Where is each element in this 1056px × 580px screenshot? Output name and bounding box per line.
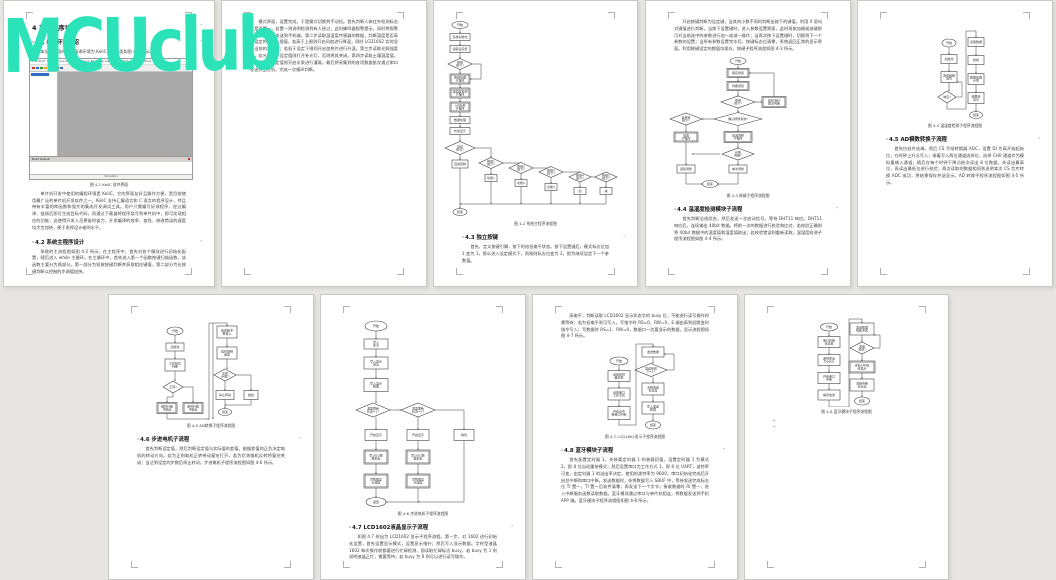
flowchart-figure: 开始串口初始化设置波特率设为9600开启串口中断等待发送发送数据到缓冲区发送完成… — [745, 317, 948, 407]
svg-text:单次调整: 单次调整 — [732, 166, 744, 171]
revision-dot — [12, 28, 14, 30]
flowchart-node: 开始 — [730, 57, 746, 64]
svg-text:返回: 返回 — [373, 499, 379, 504]
svg-text:结束: 结束 — [859, 398, 865, 403]
flowchart-node: 逆时针脉冲输出 — [183, 403, 203, 414]
svg-text:开始: 开始 — [373, 323, 379, 328]
flowchart-node: 连续调整 — [677, 165, 695, 173]
svg-text:结束: 结束 — [707, 181, 713, 186]
flowchart-node: 按键处理子程序 — [450, 74, 470, 84]
flowchart-node: 结束 — [646, 421, 661, 429]
flowchart-node: 结束 — [219, 409, 232, 416]
svg-text:按键4按下?: 按键4按下? — [576, 172, 584, 180]
toolbar-icon — [36, 67, 39, 70]
flowchart-node: 自动控制 — [452, 160, 468, 168]
section-heading: 4.1 编译环境介绍 — [32, 38, 186, 46]
flowchart-node: 开始 — [452, 22, 468, 29]
flowchart-node: 开始 — [942, 39, 956, 47]
svg-text:结束: 结束 — [457, 209, 463, 214]
flowchart-node: 响应? — [938, 91, 956, 103]
keil-screenshot: File Edit View Project Flash Debug Perip… — [29, 58, 193, 180]
flowchart-node: 开启显示 — [365, 430, 387, 441]
body-text: 模式界面，设置完成，于是模式切换到手动挡。首先判断人体红外检测标志位是否置一，若… — [250, 19, 398, 73]
figure-caption: 图 4-1 KeilC 软件界面 — [32, 182, 186, 188]
flowchart-node: 停止转动 — [216, 391, 234, 400]
flowchart-node: 数据处理计算 — [968, 74, 984, 85]
svg-text:减: 减 — [604, 188, 607, 193]
flow-connector — [718, 173, 739, 184]
svg-text:开始: 开始 — [735, 58, 741, 63]
svg-text:按键按下?: 按键按下? — [734, 97, 742, 105]
figure-caption: 图 4-4 温湿度检测子程序流程图 — [886, 123, 1024, 129]
svg-text:系统初始化: 系统初始化 — [452, 34, 467, 39]
svg-text:写入命令: 写入命令 — [373, 340, 379, 347]
page-content: 开始串口初始化设置波特率设为9600开启串口中断等待发送发送数据到缓冲区发送完成… — [745, 295, 948, 579]
flowchart-node: 正转? — [163, 381, 183, 393]
flowchart-node: 串口初始化设置 — [818, 337, 840, 348]
toolbar-icon — [40, 67, 43, 70]
page-6[interactable]: 开始初始化工作模式判断正转?顺时针脉冲输出逆时针脉冲输出给定脉冲数置入延时控制速… — [108, 294, 314, 580]
flow-connector — [874, 335, 880, 348]
flowchart-node: 读取数据 — [968, 38, 984, 47]
flowchart-node: 写入显示地址 — [364, 357, 388, 369]
svg-text:开启显示: 开启显示 — [412, 432, 424, 437]
svg-text:停止转动: 停止转动 — [219, 392, 231, 397]
svg-text:连续调整: 连续调整 — [680, 166, 692, 171]
flow-connector — [749, 73, 774, 97]
svg-text:功能2: 功能2 — [517, 180, 525, 185]
svg-text:等待: 等待 — [461, 432, 467, 437]
flowchart-node: 波特率设为9600 — [818, 355, 840, 366]
flowchart-node: 确认按键有效? — [714, 112, 762, 125]
page-7[interactable]: 开始写入命令写入显示地址写入显示数据温度更新标志=1?湿度更新标志=1?开启显示… — [320, 294, 526, 580]
flowchart-node: 功能3 — [545, 184, 557, 191]
flowchart-node: 湿度更新标志=1? — [401, 403, 435, 417]
svg-text:按键1按下?: 按键1按下? — [487, 158, 495, 166]
flowchart-node: 延时消抖再次判断 — [762, 96, 786, 107]
flowchart-node: 温度更新标志=1? — [356, 403, 390, 417]
page-2[interactable]: 模式界面，设置完成，于是模式切换到手动挡。首先判断人体红外检测标志位是否置一，若… — [221, 0, 427, 287]
section-heading: 4 系统程序设计 — [32, 22, 186, 32]
flow-connector — [386, 488, 418, 502]
revision-dot — [8, 28, 10, 30]
svg-text:正转?: 正转? — [169, 384, 177, 389]
svg-text:按键5按下?: 按键5按下? — [602, 172, 610, 180]
paragraph-mark: ↵ — [773, 424, 920, 430]
svg-text:开启显示: 开启显示 — [370, 432, 382, 437]
flowchart-node: 清除中断标志位 — [850, 379, 874, 391]
svg-text:逆时针脉冲输出: 逆时针脉冲输出 — [187, 403, 199, 411]
revision-dot — [12, 24, 14, 26]
flowchart-node: 开始 — [610, 357, 628, 365]
svg-text:继续: 继续 — [248, 392, 254, 397]
svg-text:发送完成TI=1?: 发送完成TI=1? — [645, 366, 657, 374]
flowchart-node: 数据处理 — [450, 117, 470, 124]
page-content: 开始初始化发送起始信号响应?读取数据校验数据处理计算结果送显示结束图 4-4 温… — [858, 1, 1052, 286]
flowchart-node: 工作模式判断 — [165, 359, 185, 371]
page-1[interactable]: 4 系统程序设计4.1 编译环境介绍本设计采用的软件编译环境为 KeilC，其界… — [3, 0, 215, 287]
flowchart-node: 结束 — [703, 180, 718, 187]
revision-dot — [8, 24, 10, 26]
body-text: 首先判断设定值，然后判断设定值与实际值的差值，根据差值的正负决定电机的转动方向。… — [137, 446, 285, 466]
figure-caption: 图 4-8 蓝牙模块子程序流程图 — [773, 409, 920, 415]
svg-text:写数据显示湿度: 写数据显示湿度 — [412, 476, 424, 484]
flow-connector — [956, 82, 962, 97]
flowchart-node: 开启总中断串口中断 — [608, 407, 630, 420]
svg-text:等待发送: 等待发送 — [823, 392, 835, 397]
svg-text:开始: 开始 — [616, 358, 622, 363]
flowchart-node: 系统初始化 — [450, 34, 470, 41]
svg-text:确认按键有效?: 确认按键有效? — [728, 116, 748, 121]
body-text: 开启按键判断为设定键，当其的小数不同时判断出按下的键值，利用 if 语句对键值进… — [674, 19, 822, 53]
flowchart-node: 给定脉冲数置入 — [217, 326, 237, 338]
section-heading: 4.5 AD模数转换子流程 — [886, 135, 1024, 143]
svg-text:开始: 开始 — [826, 324, 832, 329]
svg-text:湿度更新标志=1?: 湿度更新标志=1? — [412, 405, 424, 413]
toolbar-icon — [52, 67, 55, 70]
flowchart-node: 设置键按下? — [670, 113, 702, 125]
flow-connector — [213, 323, 227, 326]
flowchart-node: 初始化 — [166, 343, 184, 351]
flowchart-node: 减 — [600, 188, 612, 195]
flowchart-node: 开始 — [167, 327, 183, 335]
toolbar-icon — [48, 67, 51, 70]
figure-caption: 图 4-7 LCD1602显示子程序流程图 — [561, 434, 709, 440]
flowchart-node: 判断键值 — [727, 81, 749, 90]
flowchart-node: 写入发送数据 — [642, 402, 664, 414]
flowchart-node: 功能1 — [485, 175, 497, 182]
svg-text:加: 加 — [578, 188, 581, 193]
page-content: 开始系统初始化读取设定值按键按下?按键处理子程序温湿度检测子程序AD检测子程序数… — [434, 1, 637, 286]
flowchart-node: 写入命令 — [364, 339, 388, 349]
flow-connector — [435, 410, 464, 430]
toolbar-icon — [60, 67, 63, 70]
flowchart-figure: 开始系统初始化读取设定值按键按下?按键处理子程序温湿度检测子程序AD检测子程序数… — [434, 19, 637, 219]
flowchart-node: 继续 — [244, 391, 258, 400]
svg-text:结束: 结束 — [650, 422, 656, 427]
flowchart-node: 按键1按下? — [479, 158, 503, 169]
toolbar-icon — [32, 67, 35, 70]
flowchart-node: 保存键值 — [727, 68, 749, 77]
flowchart-node: 自动模式? — [445, 142, 475, 155]
svg-text:给定脉冲数置入: 给定脉冲数置入 — [221, 327, 233, 335]
svg-text:按键3按下?: 按键3按下? — [547, 167, 555, 175]
body-text: 高电平，判断读取 LCD1602 显示状态字的 busy 位，不能进行读写操作时… — [561, 313, 709, 340]
svg-text:设置键按下?: 设置键按下? — [681, 114, 690, 122]
flowchart-node: 长按判断? — [722, 148, 754, 160]
svg-text:开始: 开始 — [457, 22, 463, 27]
flowchart-node: 达到步数? — [214, 369, 236, 381]
flowchart-node: 开始 — [821, 323, 838, 331]
flowchart-node: 等待 — [454, 430, 474, 441]
svg-text:按键2按下?: 按键2按下? — [517, 163, 525, 171]
svg-text:清除发送标志位: 清除发送标志位 — [647, 385, 659, 393]
figure-caption: 图 4-5 AD转换子程序流程图 — [137, 423, 285, 429]
svg-text:温度更新标志=1?: 温度更新标志=1? — [367, 405, 379, 413]
flow-connector — [470, 64, 481, 79]
keil-output-body — [30, 162, 192, 174]
svg-text:状态显示: 状态显示 — [454, 128, 466, 133]
svg-text:结束: 结束 — [222, 409, 228, 414]
flowchart-node: 顺时针脉冲输出 — [157, 403, 177, 414]
flow-connector — [503, 163, 521, 164]
flowchart-node: 结果送显示 — [968, 93, 984, 104]
svg-text:波特率设为9600: 波特率设为9600 — [823, 355, 835, 363]
flowchart-node: 开启显示 — [407, 430, 429, 441]
flowchart-node: AD检测子程序 — [450, 102, 470, 112]
body-text: 首先拉低片选端，然后 CS 写给转换器 ADC，设置 DI 为高开始起始位，在时… — [886, 146, 1024, 187]
flowchart-node: 加减调整子程序 — [724, 131, 752, 142]
svg-text:结束: 结束 — [973, 112, 979, 117]
flowchart-node: 按键按下? — [721, 96, 755, 108]
svg-text:串口初始化设置: 串口初始化设置 — [823, 337, 835, 345]
flow-connector — [664, 354, 674, 370]
flowchart-node: 结束 — [453, 209, 467, 216]
svg-text:长按判断?: 长按判断? — [734, 149, 742, 157]
flowchart-node: 读取设定值 — [450, 46, 470, 53]
flow-connector — [167, 414, 209, 420]
flowchart-node: 发送数据到缓冲区 — [850, 323, 874, 335]
svg-text:保存键值: 保存键值 — [732, 70, 744, 75]
flowchart-node: 手机APP接收显示 — [849, 361, 875, 373]
svg-text:发送完成?: 发送完成? — [858, 343, 866, 351]
flow-connector — [686, 173, 703, 184]
svg-text:发送数据: 发送数据 — [647, 349, 659, 354]
close-icon — [188, 158, 191, 161]
page-4[interactable]: 开启按键判断为设定键，当其的小数不同时判断出按下的键值，利用 if 语句对键值进… — [645, 0, 851, 287]
flowchart-node: 返回 — [366, 498, 386, 507]
body-text: 首先配置定时器 1，先装载定时器 1 的装载初值，设置定时器 1 为模式 2，即… — [561, 457, 709, 505]
figure-caption: 图 4-2 系统主程序流程图 — [462, 221, 609, 227]
flowchart-node: 按键5按下? — [595, 172, 617, 182]
flowchart-figure: 开始初始化发送起始信号响应?读取数据校验数据处理计算结果送显示结束 — [858, 29, 1052, 121]
svg-text:自动模式?: 自动模式? — [456, 143, 464, 151]
svg-text:按键处理子程序: 按键处理子程序 — [454, 74, 466, 82]
flowchart-node: 结束 — [855, 397, 870, 405]
page-5[interactable]: 开始初始化发送起始信号响应?读取数据校验数据处理计算结果送显示结束图 4-4 温… — [857, 0, 1053, 287]
keil-workspace — [30, 72, 192, 156]
body-text: 系统的主流程图如图 4-2 所示。在主程序中，首先对各个模块进行初始化配置，随后… — [32, 249, 186, 276]
flowchart-node: 状态显示 — [450, 128, 470, 135]
flow-connector — [460, 195, 606, 205]
svg-text:数据处理: 数据处理 — [454, 117, 466, 122]
svg-text:响应?: 响应? — [943, 94, 951, 99]
flowchart-figure: 开始保存键值判断键值按键按下?延时消抖再次判断确认按键有效?设置键按下?设置子程… — [646, 55, 850, 191]
svg-text:功能1: 功能1 — [487, 175, 495, 180]
keil-status-bar: Simulation — [30, 174, 192, 179]
flowchart-node: 发送完成TI=1? — [635, 364, 667, 377]
svg-text:加减调整子程序: 加减调整子程序 — [732, 132, 744, 140]
flowchart-node: 清除发送标志位 — [642, 383, 664, 395]
svg-text:开启总中断串口中断: 开启总中断串口中断 — [611, 409, 626, 417]
section-heading: 4.4 温湿度检测模块子流程 — [674, 205, 822, 213]
svg-text:初始化: 初始化 — [170, 344, 179, 349]
flowchart-node: 延时控制速度 — [217, 347, 237, 359]
body-text: 本设计采用的软件编译环境为 KeilC，其界面如图 4-1 所示。 — [32, 49, 186, 56]
section-heading: 4.2 系统主程序设计 — [32, 238, 186, 246]
page-9[interactable]: 开始串口初始化设置波特率设为9600开启串口中断等待发送发送数据到缓冲区发送完成… — [744, 294, 949, 580]
body-text: 单片机开发中使用的编程环境是 KeilC，它的界面友好且操作方便，是目前使用最广… — [32, 191, 186, 232]
svg-text:达到步数?: 达到步数? — [221, 370, 229, 378]
svg-text:设置定时器初值: 设置定时器初值 — [613, 372, 625, 380]
figure-caption: 图 4-3 按键子程序流程图 — [674, 193, 822, 199]
section-heading: 4.6 步进电机子流程 — [137, 435, 285, 443]
keil-project-header — [31, 73, 49, 76]
svg-text:发送数据到缓冲区: 发送数据到缓冲区 — [856, 324, 868, 332]
body-text: 首先判断总线状态，然后发送一次启动信号，等待 DHT11 响应。DHT11 响应… — [674, 216, 822, 243]
flowchart-node: 校验 — [968, 56, 984, 65]
flow-connector — [183, 387, 193, 403]
flowchart-node: 发送完成? — [850, 342, 874, 354]
keil-project-panel — [30, 72, 58, 156]
revision-dot — [12, 20, 14, 22]
svg-text:开始: 开始 — [946, 40, 952, 45]
flowchart-node: 设置串口工作方式 — [608, 388, 630, 400]
keil-output-title: Build Output — [32, 157, 50, 162]
svg-text:设置串口工作方式: 设置串口工作方式 — [613, 390, 625, 398]
revision-marks — [8, 20, 17, 30]
flowchart-node: 写1602数据地址 — [364, 450, 388, 464]
svg-text:判断键值: 判断键值 — [732, 83, 744, 88]
page-3[interactable]: 开始系统初始化读取设定值按键按下?按键处理子程序温湿度检测子程序AD检测子程序数… — [433, 0, 638, 287]
flowchart-node: 温湿度检测子程序 — [450, 88, 470, 98]
svg-text:自动控制: 自动控制 — [454, 161, 466, 166]
flowchart-node: 结束 — [970, 112, 983, 119]
flowchart-node: 按键2按下? — [509, 163, 533, 174]
keil-build-output-panel: Build Output — [30, 156, 192, 174]
svg-text:功能3: 功能3 — [547, 184, 555, 189]
page-content: 开始写入命令写入显示地址写入显示数据温度更新标志=1?湿度更新标志=1?开启显示… — [321, 295, 525, 579]
flow-connector — [209, 323, 213, 419]
flow-connector — [167, 393, 173, 403]
svg-text:AD检测子程序: AD检测子程序 — [455, 102, 465, 110]
flowchart-node: 单次调整 — [729, 165, 747, 173]
flowchart-figure: 开始设置定时器初值设置串口工作方式开启总中断串口中断发送数据发送完成TI=1?清… — [533, 342, 737, 432]
page-content: 4 系统程序设计4.1 编译环境介绍本设计采用的软件编译环境为 KeilC，其界… — [4, 1, 214, 286]
section-heading: 4.7 LCD1602液晶显示子流程 — [349, 523, 497, 531]
svg-text:清除中断标志位: 清除中断标志位 — [856, 380, 868, 388]
page-content: 模式界面，设置完成，于是模式切换到手动挡。首先判断人体红外检测标志位是否置一，若… — [222, 1, 426, 286]
svg-text:延时消抖再次判断: 延时消抖再次判断 — [768, 97, 780, 105]
flowchart-node: 设置定时器初值 — [608, 371, 630, 382]
svg-text:读取设定值: 读取设定值 — [452, 46, 467, 51]
document-grid: 4 系统程序设计4.1 编译环境介绍本设计采用的软件编译环境为 KeilC，其界… — [0, 0, 1056, 580]
flowchart-node: 初始化 — [941, 55, 957, 64]
svg-text:开始: 开始 — [172, 328, 178, 333]
flowchart-node: 写入显示数据 — [364, 379, 388, 392]
page-content: 开始初始化工作模式判断正转?顺时针脉冲输出逆时针脉冲输出给定脉冲数置入延时控制速… — [109, 295, 313, 579]
section-heading: 4.3 独立按键 — [462, 233, 609, 241]
svg-text:校验: 校验 — [973, 57, 979, 62]
section-heading: 4.8 蓝牙模块子流程 — [561, 446, 709, 454]
svg-text:顺时针脉冲输出: 顺时针脉冲输出 — [161, 403, 173, 411]
flow-connector — [475, 148, 491, 158]
page-content: 开启按键判断为设定键，当其的小数不同时判断出按下的键值，利用 if 语句对键值进… — [646, 1, 850, 286]
flowchart-node: 功能2 — [515, 180, 527, 187]
flowchart-node: 加 — [574, 188, 586, 195]
flowchart-node: 发送起始信号 — [941, 72, 957, 83]
flowchart-node: 设置子程序 — [674, 132, 698, 142]
keil-editor-area — [58, 72, 192, 156]
flowchart-node: 开启串口中断 — [818, 373, 840, 384]
svg-text:读取数据: 读取数据 — [970, 39, 982, 44]
svg-text:写数据显示温度: 写数据显示温度 — [370, 476, 382, 484]
flowchart-figure: 开始写入命令写入显示地址写入显示数据温度更新标志=1?湿度更新标志=1?开启显示… — [321, 319, 525, 509]
flow-connector — [225, 400, 251, 406]
toolbar-icon — [44, 67, 47, 70]
svg-text:初始化: 初始化 — [944, 56, 953, 61]
page-content: 高电平，判断读取 LCD1602 显示状态字的 busy 位，不能进行读写操作时… — [533, 295, 737, 579]
body-text: 如图 4.7 给出为 LCD1602 显示子程序流程。第一步，对 1602 进行… — [349, 534, 497, 561]
figure-caption: 图 4-6 步进电机子程序流程图 — [349, 511, 497, 517]
flowchart-node: 写数据显示湿度 — [406, 474, 430, 488]
keil-toolbar — [30, 64, 192, 72]
toolbar-icon — [56, 67, 59, 70]
flowchart-node: 按键4按下? — [569, 172, 591, 182]
revision-dot — [8, 20, 10, 22]
svg-text:按键按下?: 按键按下? — [456, 59, 464, 67]
body-text: 首先，定义按键引脚，按下时给低电平状态。按下设置键后，模式标志位加 1 变为 1… — [462, 244, 609, 264]
flowchart-node: 等待发送 — [818, 390, 840, 400]
flow-connector — [236, 375, 251, 391]
page-8[interactable]: 高电平，判断读取 LCD1602 显示状态字的 busy 位，不能进行读写操作时… — [532, 294, 738, 580]
flowchart-node: 开始 — [365, 321, 387, 331]
flowchart-figure: 开始初始化工作模式判断正转?顺时针脉冲输出逆时针脉冲输出给定脉冲数置入延时控制速… — [109, 321, 313, 421]
flowchart-node: 按键按下? — [448, 59, 472, 70]
flowchart-node: 发送数据 — [642, 347, 664, 357]
flowchart-node: 写数据显示温度 — [364, 474, 388, 488]
flowchart-node: 写1602数据地址 — [406, 450, 430, 464]
